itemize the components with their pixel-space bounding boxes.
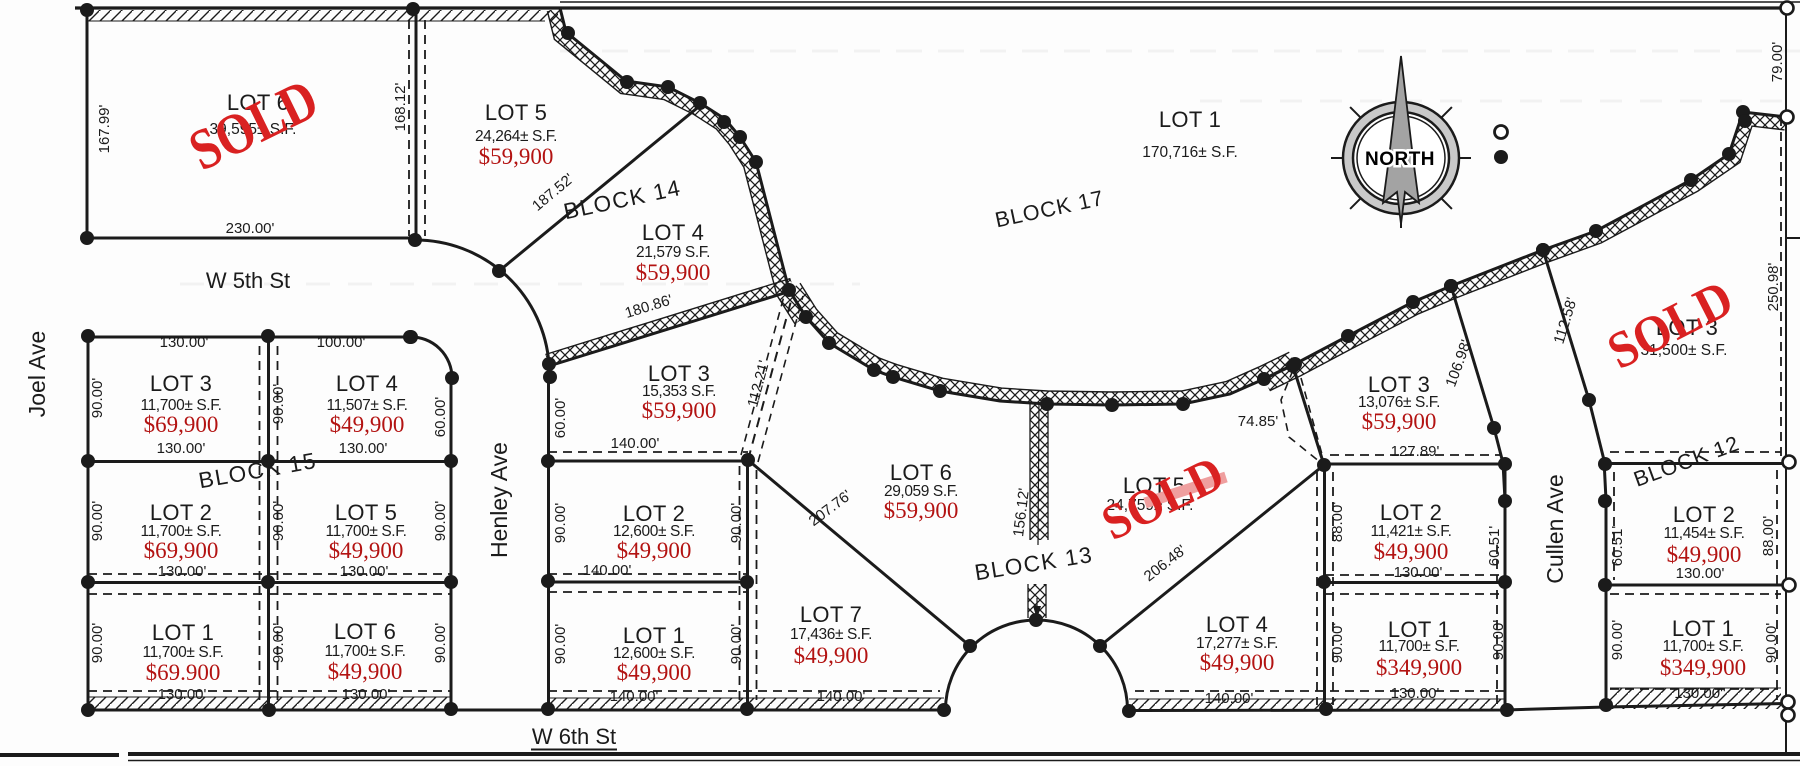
svg-text:90.00': 90.00' xyxy=(728,624,745,665)
svg-text:130.00': 130.00' xyxy=(339,440,388,457)
svg-text:LOT 6: LOT 6 xyxy=(890,460,952,485)
svg-text:LOT 4: LOT 4 xyxy=(336,371,398,396)
svg-text:140.00': 140.00' xyxy=(1205,690,1254,707)
svg-text:130.00': 130.00' xyxy=(1676,565,1725,582)
svg-text:130.00': 130.00' xyxy=(342,686,391,703)
svg-text:90.00': 90.00' xyxy=(728,503,745,544)
svg-text:90.00': 90.00' xyxy=(270,384,287,425)
svg-text:LOT 2: LOT 2 xyxy=(1380,500,1442,525)
svg-text:74.85': 74.85' xyxy=(1238,413,1279,430)
svg-text:11,700± S.F.: 11,700± S.F. xyxy=(1663,638,1744,655)
svg-text:$49,900: $49,900 xyxy=(329,538,404,563)
svg-text:90.00': 90.00' xyxy=(1763,623,1780,664)
svg-text:Joel Ave: Joel Ave xyxy=(24,331,50,418)
svg-text:$59,900: $59,900 xyxy=(642,398,717,423)
svg-text:LOT 2: LOT 2 xyxy=(1673,502,1735,527)
svg-text:90.00': 90.00' xyxy=(1609,620,1626,661)
svg-text:LOT 5: LOT 5 xyxy=(335,500,397,525)
svg-text:100.00': 100.00' xyxy=(317,334,366,351)
svg-text:130.00': 130.00' xyxy=(1394,564,1443,581)
svg-text:60.51': 60.51' xyxy=(1609,526,1626,567)
svg-text:$49,900: $49,900 xyxy=(330,412,405,437)
svg-text:LOT 1: LOT 1 xyxy=(152,620,214,645)
svg-text:LOT 1: LOT 1 xyxy=(1159,107,1221,132)
svg-text:$59,900: $59,900 xyxy=(636,260,711,285)
svg-text:$59,900: $59,900 xyxy=(884,498,959,523)
svg-text:60.00': 60.00' xyxy=(432,397,449,438)
svg-text:88.00': 88.00' xyxy=(1329,502,1346,543)
svg-text:NORTH: NORTH xyxy=(1365,149,1435,170)
svg-text:90.00': 90.00' xyxy=(432,623,449,664)
svg-text:11,700± S.F.: 11,700± S.F. xyxy=(1379,638,1460,655)
svg-text:90.00': 90.00' xyxy=(89,501,106,542)
svg-text:140.00': 140.00' xyxy=(610,688,659,705)
svg-text:$59,900: $59,900 xyxy=(1362,409,1437,434)
svg-text:90.00': 90.00' xyxy=(552,503,569,544)
svg-text:168.12': 168.12' xyxy=(392,82,409,131)
svg-text:127.89': 127.89' xyxy=(1391,443,1440,460)
svg-text:130.00'': 130.00'' xyxy=(1674,685,1726,702)
svg-text:90.00': 90.00' xyxy=(432,501,449,542)
svg-text:140.00': 140.00' xyxy=(611,435,660,452)
svg-text:130.00': 130.00' xyxy=(340,563,389,580)
svg-text:21,579 S.F.: 21,579 S.F. xyxy=(636,244,710,261)
svg-text:24,264± S.F.: 24,264± S.F. xyxy=(475,128,557,145)
svg-text:LOT 5: LOT 5 xyxy=(485,100,547,125)
svg-text:$49,900: $49,900 xyxy=(328,659,403,684)
svg-text:$49,900: $49,900 xyxy=(1374,539,1449,564)
svg-text:$49,900: $49,900 xyxy=(794,643,869,668)
svg-text:11,421± S.F.: 11,421± S.F. xyxy=(1371,523,1452,540)
svg-text:$49,900: $49,900 xyxy=(1200,650,1275,675)
svg-text:$49,900: $49,900 xyxy=(617,660,692,685)
svg-text:130.00': 130.00' xyxy=(1391,685,1440,702)
svg-text:130.00': 130.00' xyxy=(160,334,209,351)
svg-text:60.00': 60.00' xyxy=(552,398,569,439)
svg-text:Henley Ave: Henley Ave xyxy=(486,442,512,558)
svg-text:11,700± S.F.: 11,700± S.F. xyxy=(143,644,224,661)
svg-text:$69,900: $69,900 xyxy=(144,538,219,563)
svg-text:LOT 7: LOT 7 xyxy=(800,602,862,627)
svg-text:$49,900: $49,900 xyxy=(617,538,692,563)
svg-text:$59,900: $59,900 xyxy=(479,144,554,169)
svg-text:W 5th St: W 5th St xyxy=(206,268,290,293)
svg-text:90.00': 90.00' xyxy=(270,501,287,542)
svg-text:90.00': 90.00' xyxy=(89,623,106,664)
svg-text:140.00': 140.00' xyxy=(583,562,632,579)
svg-text:90.00': 90.00' xyxy=(1329,623,1346,664)
svg-text:W 6th St: W 6th St xyxy=(532,724,616,749)
svg-text:230.00': 230.00' xyxy=(226,220,275,237)
svg-text:88.00': 88.00' xyxy=(1760,516,1777,557)
svg-text:LOT 6: LOT 6 xyxy=(334,619,396,644)
svg-text:130.00': 130.00' xyxy=(157,440,206,457)
svg-text:11,454± S.F.: 11,454± S.F. xyxy=(1664,525,1745,542)
svg-text:LOT 4: LOT 4 xyxy=(642,220,704,245)
svg-text:170,716± S.F.: 170,716± S.F. xyxy=(1142,144,1238,161)
svg-text:140.00': 140.00' xyxy=(817,688,866,705)
svg-text:60.51': 60.51' xyxy=(1486,526,1503,567)
svg-text:90.00': 90.00' xyxy=(89,378,106,419)
svg-text:90.00': 90.00' xyxy=(270,623,287,664)
svg-text:250.98': 250.98' xyxy=(1765,262,1782,311)
svg-text:130.00': 130.00' xyxy=(158,686,207,703)
svg-text:90.00': 90.00' xyxy=(1490,620,1507,661)
svg-text:11,700± S.F.: 11,700± S.F. xyxy=(325,643,406,660)
svg-text:$349,900: $349,900 xyxy=(1376,655,1462,680)
svg-text:$49,900: $49,900 xyxy=(1667,542,1742,567)
svg-text:LOT 4: LOT 4 xyxy=(1206,612,1268,637)
svg-text:$349,900: $349,900 xyxy=(1660,655,1746,680)
svg-text:79.00': 79.00' xyxy=(1769,42,1786,83)
svg-text:LOT 2: LOT 2 xyxy=(150,500,212,525)
svg-text:17,436± S.F.: 17,436± S.F. xyxy=(790,626,872,643)
svg-text:90.00': 90.00' xyxy=(552,624,569,665)
svg-text:LOT 3: LOT 3 xyxy=(150,371,212,396)
svg-text:130.00': 130.00' xyxy=(158,563,207,580)
svg-text:$69,900: $69,900 xyxy=(144,412,219,437)
svg-text:Cullen Ave: Cullen Ave xyxy=(1542,474,1568,584)
svg-text:167.99': 167.99' xyxy=(96,104,113,153)
svg-text:$69.900: $69.900 xyxy=(146,660,221,685)
